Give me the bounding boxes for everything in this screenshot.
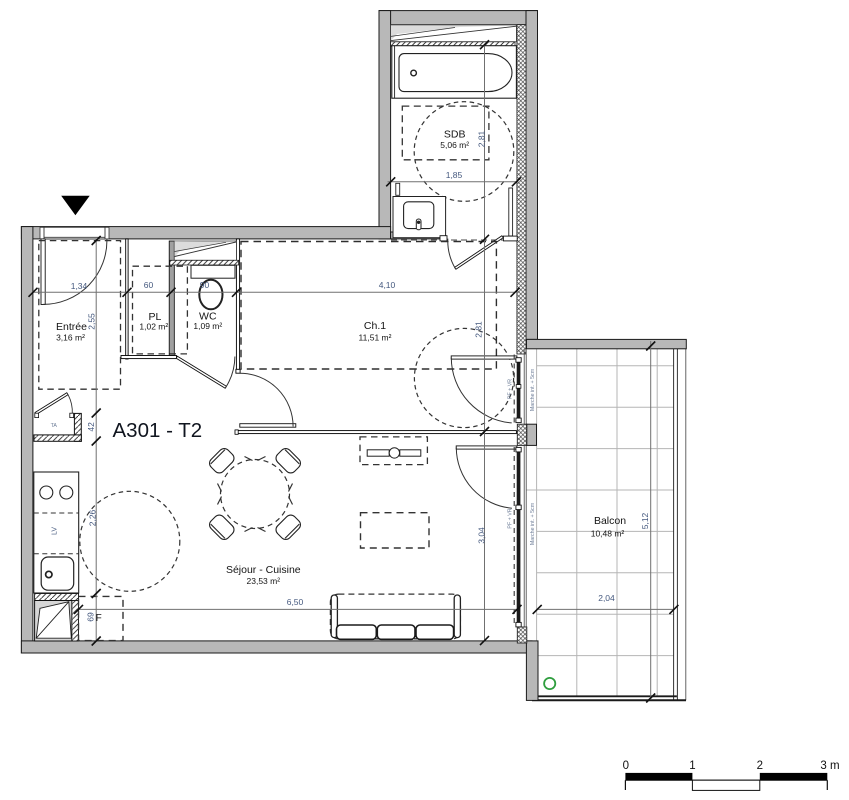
svg-text:10,48 m²: 10,48 m² (591, 528, 625, 538)
svg-text:2,04: 2,04 (598, 593, 615, 603)
svg-text:3,04: 3,04 (477, 527, 487, 544)
svg-text:Marche int. + 5cm: Marche int. + 5cm (530, 502, 536, 545)
svg-text:2,55: 2,55 (87, 313, 97, 330)
svg-text:11,51 m²: 11,51 m² (359, 332, 392, 342)
svg-text:Marche int. + 5cm: Marche int. + 5cm (530, 368, 536, 411)
svg-text:23,53 m²: 23,53 m² (247, 576, 281, 586)
svg-text:42: 42 (86, 422, 96, 432)
svg-text:1: 1 (689, 760, 695, 772)
svg-text:LV: LV (52, 527, 59, 535)
svg-text:6,50: 6,50 (287, 597, 304, 607)
svg-text:5,12: 5,12 (640, 512, 650, 529)
svg-text:TA: TA (51, 423, 58, 429)
svg-text:60: 60 (144, 280, 154, 290)
svg-text:0: 0 (623, 760, 629, 772)
svg-text:2: 2 (757, 760, 763, 772)
svg-text:3 m: 3 m (820, 760, 839, 772)
svg-text:A301 - T2: A301 - T2 (113, 419, 203, 442)
svg-text:Entrée: Entrée (56, 321, 87, 333)
svg-text:1,02 m²: 1,02 m² (139, 322, 168, 332)
svg-text:1,09 m²: 1,09 m² (193, 321, 222, 331)
svg-text:2,26: 2,26 (88, 509, 98, 526)
svg-text:3,16 m²: 3,16 m² (56, 333, 85, 343)
svg-text:2,81: 2,81 (476, 130, 486, 147)
svg-text:1,34: 1,34 (71, 281, 88, 291)
svg-text:4,10: 4,10 (379, 280, 396, 290)
svg-text:PF + VR: PF + VR (507, 379, 513, 399)
svg-text:Ch.1: Ch.1 (364, 320, 386, 332)
svg-text:F: F (96, 613, 102, 624)
svg-text:1,85: 1,85 (446, 170, 463, 180)
svg-text:5,06 m²: 5,06 m² (440, 140, 469, 150)
svg-text:Séjour - Cuisine: Séjour - Cuisine (226, 564, 301, 576)
svg-text:PF + VR: PF + VR (507, 508, 513, 528)
svg-text:SDB: SDB (444, 129, 466, 141)
svg-text:Balcon: Balcon (594, 515, 626, 527)
svg-text:69: 69 (86, 612, 96, 622)
svg-text:90: 90 (200, 280, 210, 290)
svg-text:2,81: 2,81 (474, 321, 484, 338)
